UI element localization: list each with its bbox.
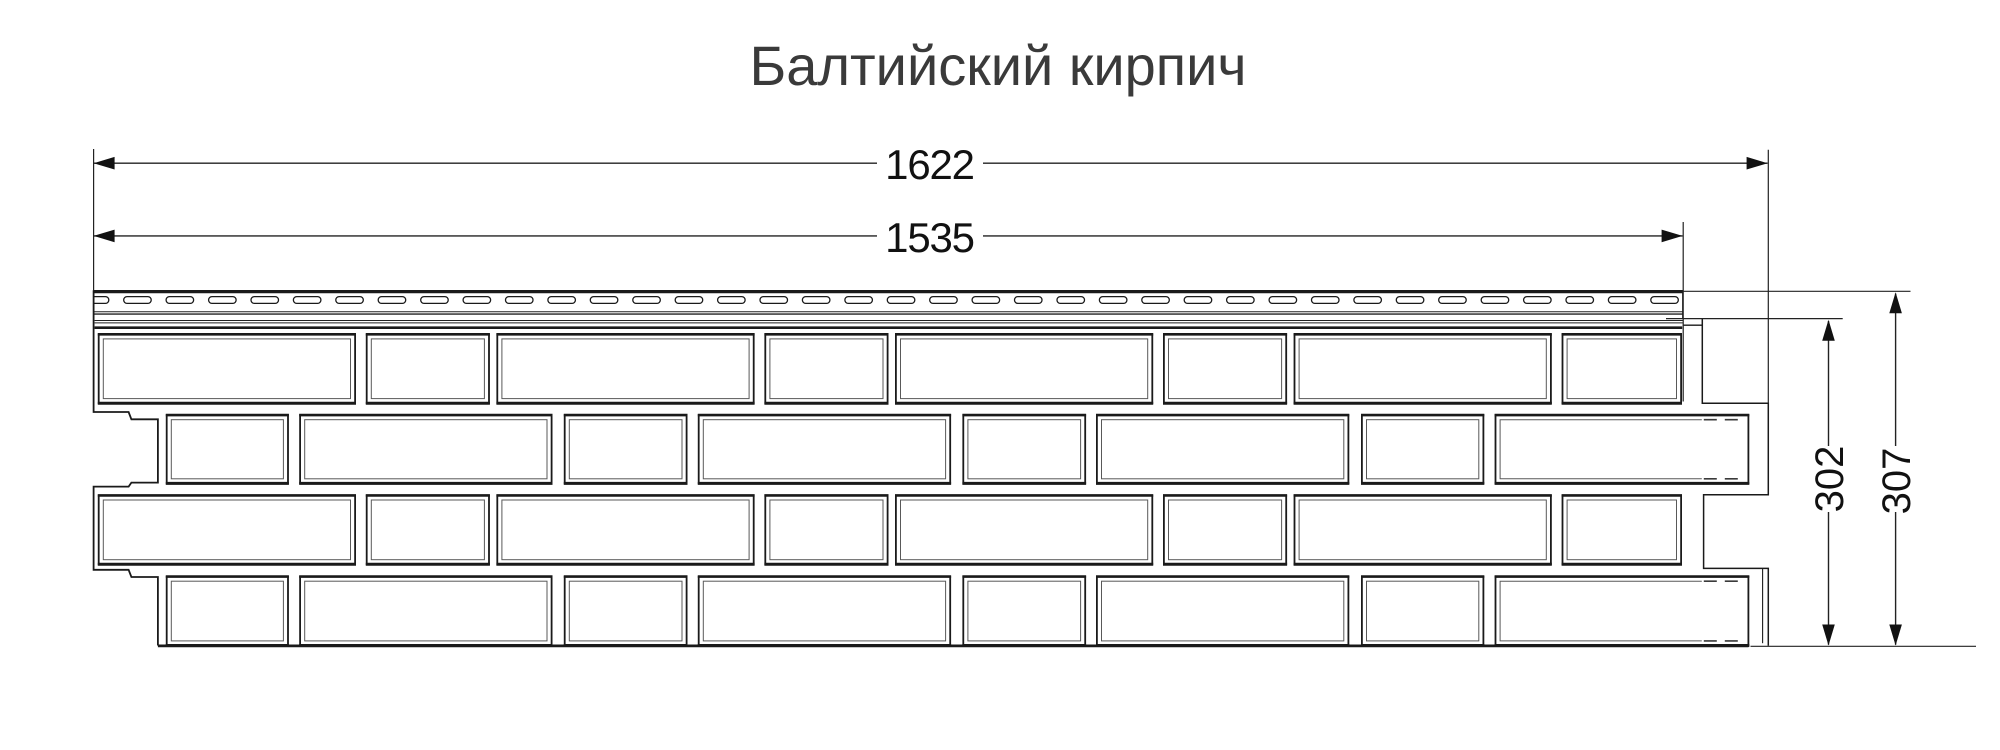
svg-text:Балтийский кирпич: Балтийский кирпич xyxy=(749,34,1246,97)
svg-text:1622: 1622 xyxy=(885,141,974,188)
svg-text:1535: 1535 xyxy=(885,214,974,261)
svg-text:307: 307 xyxy=(1875,448,1919,515)
svg-text:302: 302 xyxy=(1808,446,1852,513)
